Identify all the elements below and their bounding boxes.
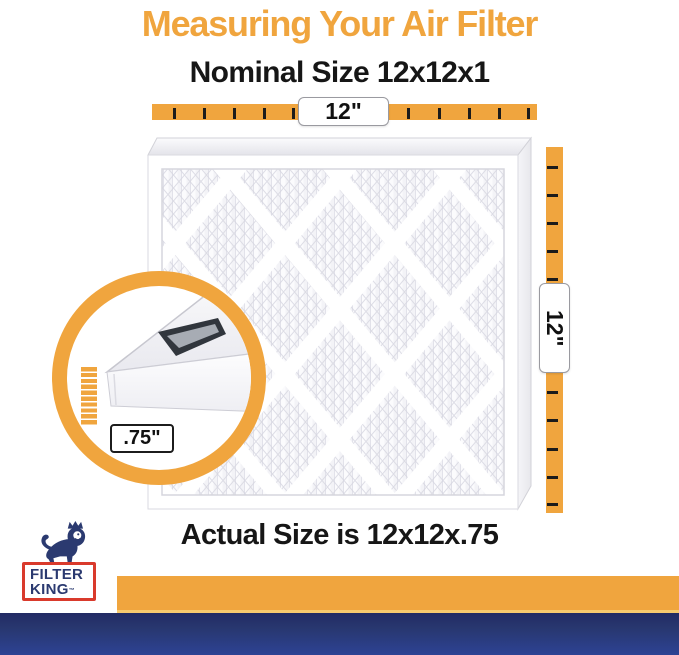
ruler-tick — [263, 108, 266, 119]
actual-size-heading: Actual Size is 12x12x.75 — [0, 519, 679, 552]
footer-blue-bar — [0, 613, 679, 655]
width-value: 12" — [325, 98, 362, 125]
ruler-tick — [547, 194, 558, 197]
ruler-tick — [527, 108, 530, 119]
ruler-tick — [547, 391, 558, 394]
depth-measurement-label: .75" — [110, 424, 174, 453]
ruler-tick — [547, 448, 558, 451]
width-measurement-label: 12" — [298, 97, 389, 126]
ruler-tick — [233, 108, 236, 119]
ruler-tick — [547, 278, 558, 281]
ruler-tick — [547, 222, 558, 225]
ruler-tick — [292, 108, 295, 119]
infographic-canvas: Measuring Your Air Filter Nominal Size 1… — [0, 0, 679, 655]
ruler-tick — [173, 108, 176, 119]
ruler-tick — [547, 250, 558, 253]
ruler-tick — [468, 108, 471, 119]
footer-orange-bar — [117, 576, 679, 613]
ruler-tick — [547, 166, 558, 169]
page-title: Measuring Your Air Filter — [0, 3, 679, 45]
trademark-symbol: ™ — [69, 588, 75, 594]
filter-king-logo: FILTER KING™ — [22, 562, 96, 601]
depth-ruler — [81, 367, 97, 425]
magnifier-circle: .75" — [52, 271, 266, 485]
ruler-tick — [547, 503, 558, 506]
lion-crown-logo-icon — [33, 520, 91, 564]
ruler-tick — [203, 108, 206, 119]
filter-top-face — [148, 138, 531, 155]
ruler-tick — [547, 419, 558, 422]
filter-side-face — [518, 138, 531, 509]
ruler-tick — [407, 108, 410, 119]
height-value: 12" — [541, 310, 568, 347]
nominal-size-heading: Nominal Size 12x12x1 — [0, 56, 679, 90]
logo-line1: FILTER — [30, 567, 93, 582]
ruler-tick — [498, 108, 501, 119]
logo-line2: KING™ — [30, 582, 93, 597]
depth-value: .75" — [123, 427, 160, 450]
ruler-tick — [547, 476, 558, 479]
ruler-tick — [438, 108, 441, 119]
height-measurement-label: 12" — [539, 283, 570, 373]
